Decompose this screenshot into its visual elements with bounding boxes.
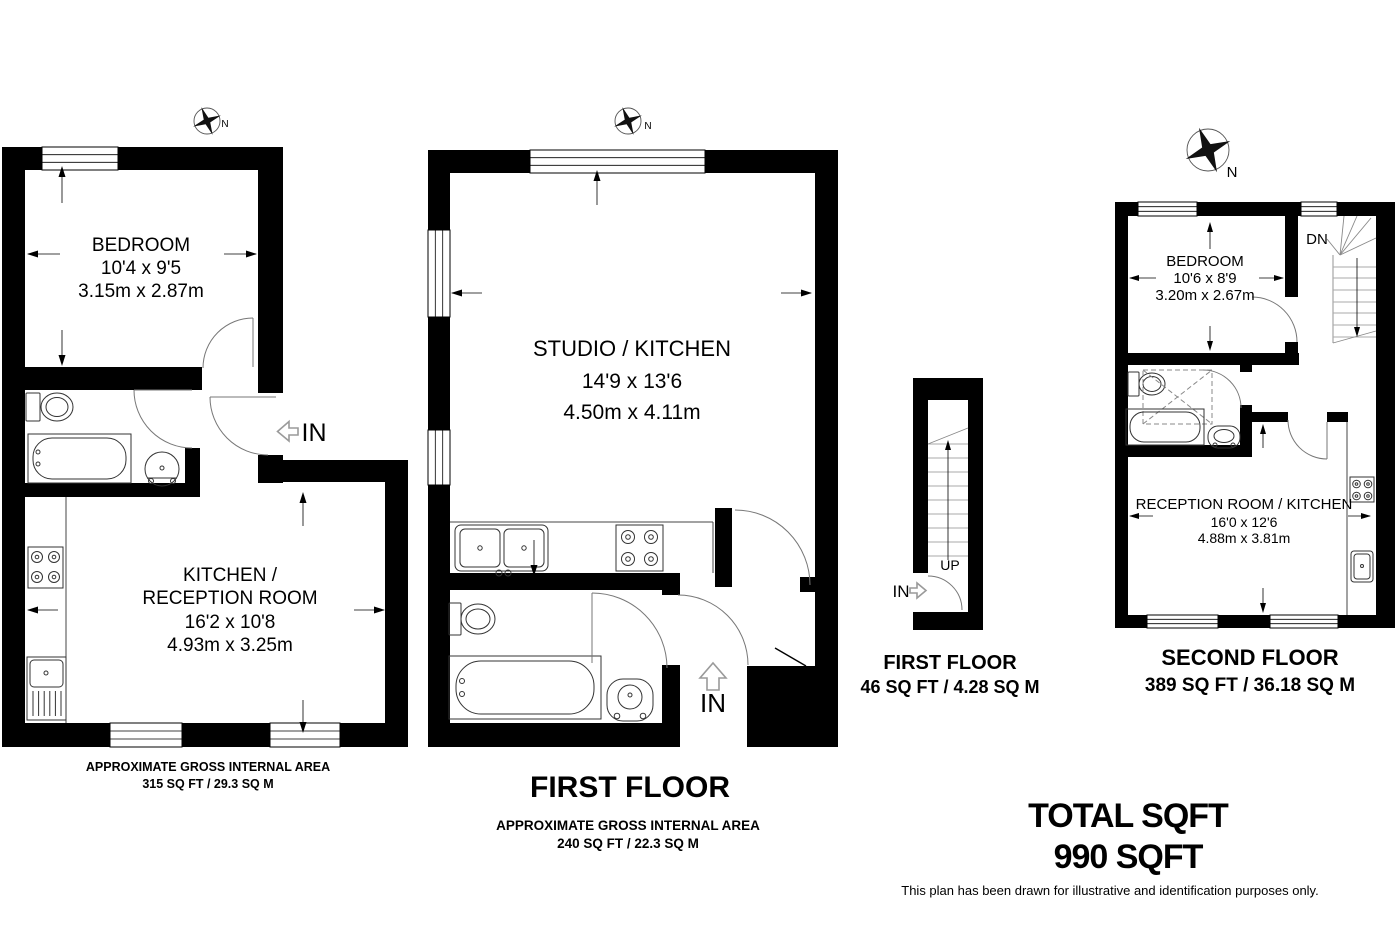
total-title: TOTAL SQFT [1028,797,1229,835]
floor-title: FIRST FLOOR [530,771,730,804]
floor-title: FIRST FLOOR [883,652,1017,674]
window-icon [42,147,118,170]
toilet-icon [26,393,73,421]
plan-middle: N STUDIO / KITCHEN 14'9 x 13'6 4.50m x 4… [428,101,838,851]
compass-label: N [1227,164,1238,181]
hob-icon [616,525,663,571]
stairs-icon [1327,216,1376,343]
window-icon [110,723,182,747]
floor-title: SECOND FLOOR [1161,645,1338,670]
sink-icon [145,452,179,486]
entry-door-leaf [775,648,806,666]
totals-block: TOTAL SQFT 990 SQFT This plan has been d… [901,797,1318,898]
plan-stairs: UP IN FIRST FLOOR 46 SQ FT / 4.28 SQ M [860,378,1039,697]
window-icon [428,230,450,317]
disclaimer: This plan has been drawn for illustrativ… [901,883,1318,898]
toilet-icon [1128,372,1165,396]
sink-icon [1208,426,1240,448]
bathtub-icon [449,656,601,719]
room-name: BEDROOM [1166,253,1244,270]
compass-label: N [644,121,651,132]
sink-icon [607,679,653,721]
window-icon [1301,202,1337,216]
area-note: APPROXIMATE GROSS INTERNAL AREA [496,818,760,833]
room-dim-imperial: 16'2 x 10'8 [185,612,276,633]
walls [1115,202,1395,628]
plan-left: N BEDROOM 10'4 x 9'5 3.15m x 2.87m KITCH… [2,101,408,791]
bathtub-icon [28,434,131,483]
window-icon [428,430,450,485]
room-name: RECEPTION ROOM [142,588,317,609]
room-dim-imperial: 16'0 x 12'6 [1211,514,1278,530]
total-value: 990 SQFT [1054,838,1204,876]
floorplan-page: N BEDROOM 10'4 x 9'5 3.15m x 2.87m KITCH… [0,0,1400,932]
window-icon [1270,615,1338,628]
entry-label: IN [302,419,327,447]
room-name: KITCHEN / [183,565,278,586]
door-arc [1203,297,1327,459]
room-name: STUDIO / KITCHEN [533,336,731,361]
window-icon [1138,202,1197,216]
kitchen-sink-icon [1351,551,1373,582]
bathtub-icon [1126,409,1204,445]
plan-right: N BEDROOM 10'6 x 8'9 3.20m x 2.67m DN RE… [1115,119,1395,696]
toilet-icon [449,603,495,635]
hob-icon [1350,477,1374,502]
room-dim-metric: 3.15m x 2.87m [78,281,204,302]
kitchen-sink-icon [27,657,66,720]
room-name: BEDROOM [92,235,190,256]
door-arc [928,576,962,610]
compass-icon [608,101,647,140]
compass-label: N [221,119,228,130]
room-dim-metric: 3.20m x 2.67m [1155,287,1254,304]
room-dim-metric: 4.50m x 4.11m [563,401,700,424]
window-icon [1147,615,1218,628]
entry-arrow-icon [910,583,926,598]
stairs-icon [928,428,968,560]
shower-icon [1143,370,1212,424]
area-value: 46 SQ FT / 4.28 SQ M [860,677,1039,697]
entry-arrow-icon [278,422,299,442]
area-note: APPROXIMATE GROSS INTERNAL AREA [86,760,330,774]
entry-label: IN [893,582,910,601]
room-dim-metric: 4.88m x 3.81m [1198,530,1291,546]
room-dim-imperial: 10'6 x 8'9 [1173,270,1236,287]
entry-label: IN [700,688,726,718]
window-icon [530,150,705,173]
floorplan-drawing: N BEDROOM 10'4 x 9'5 3.15m x 2.87m KITCH… [0,0,1400,932]
entry-arrow-icon [700,663,726,690]
area-value: 389 SQ FT / 36.18 SQ M [1145,675,1355,696]
area-value: 315 SQ FT / 29.3 SQ M [142,777,273,791]
hob-icon [28,547,63,588]
room-dim-metric: 4.93m x 3.25m [167,635,293,656]
room-dim-imperial: 10'4 x 9'5 [101,258,181,279]
area-value: 240 SQ FT / 22.3 SQ M [557,836,699,851]
room-dim-imperial: 14'9 x 13'6 [582,370,682,393]
up-label: UP [940,557,959,573]
down-label: DN [1306,231,1328,248]
room-name: RECEPTION ROOM / KITCHEN [1136,496,1353,513]
